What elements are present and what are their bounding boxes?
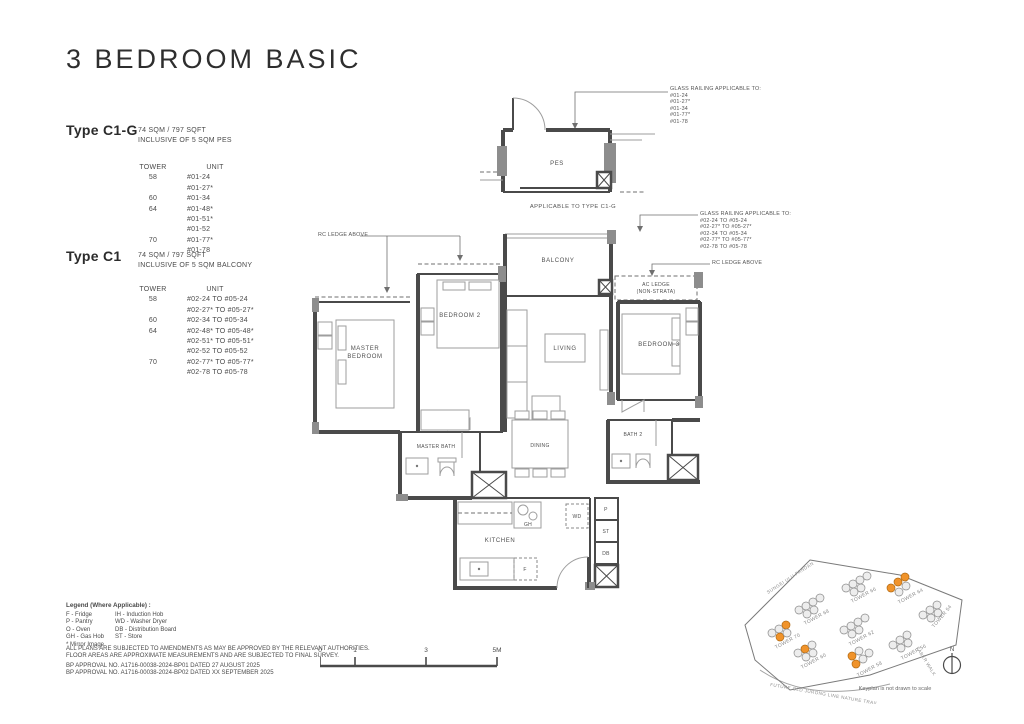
table-row: #01-27* [131,185,297,195]
unit-header: UNIT [175,164,255,174]
inclusive-text: INCLUSIVE OF 5 SQM BALCONY [138,261,252,271]
svg-text:N: N [950,647,954,653]
area-text: 74 SQM / 797 SQFT [138,251,252,261]
keyplan-tower-64: TOWER 64 [887,573,925,606]
type-c1g-area: 74 SQM / 797 SQFT INCLUSIVE OF 5 SQM PES [138,126,232,146]
label-pantry: P [604,507,608,513]
room-label-pes: PES [550,161,564,167]
table-row: 70#02-77* TO #05-77* [131,359,297,369]
table-row: 70#01-77* [131,237,297,247]
label-wd: WD [573,514,582,520]
scale-bar-graphic [320,647,505,673]
table-row: #02-51* TO #05-51* [131,338,297,348]
north-arrow-icon: N [944,647,961,674]
table-row: 60#02-34 TO #05-34 [131,317,297,327]
tower-header: TOWER [131,164,175,174]
pes-glass-railing-annotation: GLASS RAILING APPLICABLE TO: #01-24 #01-… [670,86,761,125]
table-row: #01-52 [131,226,297,236]
legend-column-1: F - Fridge P - Pantry O - Oven GH - Gas … [66,612,115,650]
room-label-master-bedroom-1: MASTER [351,346,380,352]
room-label-master-bedroom-2: BEDROOM [347,354,382,360]
bp-approvals: BP APPROVAL NO. A1716-00038-2024-BP01 DA… [66,663,274,677]
table-row: #01-51* [131,216,297,226]
tower-header: TOWER [131,286,175,296]
main-floor-plan: MASTER BEDROOM BEDROOM 2 BALCONY LIVING … [300,210,790,620]
room-label-living: LIVING [553,346,576,352]
table-row: 64#01-48* [131,206,297,216]
keyplan: TOWER 70 TOWER 68 TOWER 66 TOWER 64 TOWE… [740,552,975,704]
table-row: #02-78 TO #05-78 [131,369,297,379]
legend-column-2: IH - Induction Hob WD - Washer Dryer DB … [115,612,176,650]
area-text: 74 SQM / 797 SQFT [138,126,232,136]
keyplan-tower-70: TOWER 70 [768,621,802,651]
room-label-dining: DINING [530,443,549,449]
keyplan-tower-62: TOWER 62 [840,614,876,648]
table-header: TOWER UNIT [131,286,297,296]
room-label-bath2: BATH 2 [624,432,643,438]
keyplan-tower-66: TOWER 66 [842,572,878,605]
keyplan-road-sungei: SUNGEI ULU PANDAN [766,561,815,595]
table-row: 58#02-24 TO #05-24 [131,296,297,306]
table-row: #02-27* TO #05-27* [131,307,297,317]
table-row: 58#01-24 [131,174,297,184]
legend: Legend (Where Applicable) : F - Fridge P… [66,602,176,650]
room-label-ac-ledge-2: (NON-STRATA) [637,289,676,295]
keyplan-note: Keyplan is not drawn to scale [859,686,932,692]
type-c1-table: TOWER UNIT 58#02-24 TO #05-24 #02-27* TO… [131,286,297,380]
keyplan-tower-58: TOWER 58 [848,647,884,679]
inclusive-text: INCLUSIVE OF 5 SQM PES [138,136,232,146]
page-title: 3 BEDROOM BASIC [66,44,362,75]
room-label-master-bath: MASTER BATH [417,444,456,450]
rc-ledge-annotation-left: RC LEDGE ABOVE [318,232,368,239]
keyplan-tower-60: TOWER 60 [794,641,828,671]
keyplan-road-faber: FABER WALK [915,646,937,677]
room-label-bedroom2: BEDROOM 2 [439,313,480,319]
table-row: #02-52 TO #05-52 [131,348,297,358]
unit-header: UNIT [175,286,255,296]
type-c1g-table: TOWER UNIT 58#01-24 #01-27* 60#01-34 64#… [131,164,297,258]
rc-ledge-annotation-right: RC LEDGE ABOVE [712,260,762,267]
room-label-ac-ledge-1: AC LEDGE [642,282,670,288]
table-header: TOWER UNIT [131,164,297,174]
glass-railing-annotation-main: GLASS RAILING APPLICABLE TO: #02-24 TO #… [700,211,791,250]
room-label-bedroom3: BEDROOM 3 [638,342,679,348]
type-c1-area: 74 SQM / 797 SQFT INCLUSIVE OF 5 SQM BAL… [138,251,252,271]
type-c1g-heading: Type C1-G [66,122,138,138]
table-row: 64#02-48* TO #05-48* [131,328,297,338]
legend-title: Legend (Where Applicable) : [66,602,176,610]
label-fridge: F [523,567,526,573]
scale-bar: 0 1 3 5M [320,647,505,673]
label-db: DB [602,551,610,557]
keyplan-tower-54: TOWER 54 [919,601,953,629]
type-c1-heading: Type C1 [66,248,122,264]
table-row: 60#01-34 [131,195,297,205]
room-label-balcony: BALCONY [542,258,575,264]
label-store: ST [603,529,610,535]
label-gas-hob: GH [524,522,532,528]
keyplan-tower-68: TOWER 68 [795,594,831,627]
room-label-kitchen: KITCHEN [485,538,516,544]
